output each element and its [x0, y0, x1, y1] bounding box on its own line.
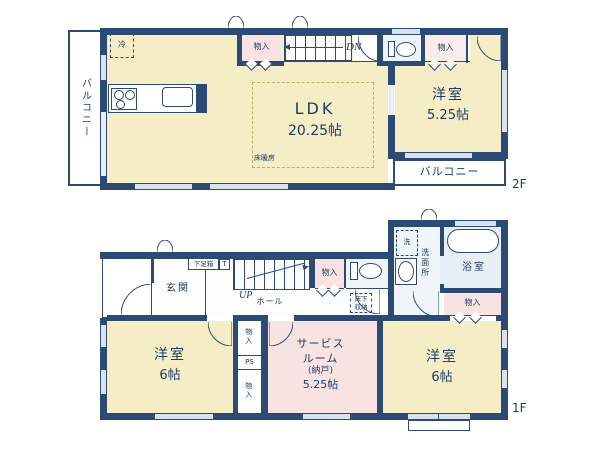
stairs-2f: [284, 35, 352, 61]
door-gap: [389, 86, 394, 114]
ldk-name-label: LDK: [280, 100, 350, 118]
counter-end: [196, 84, 207, 113]
casement-window-icon: [292, 16, 308, 28]
balcony-left: バルコニー: [68, 30, 102, 186]
window: [392, 29, 420, 34]
casement-window-icon: [228, 16, 244, 28]
room-bedroom-2f: [395, 61, 501, 152]
door-arc-icon: [477, 36, 501, 61]
window: [502, 370, 507, 388]
service-room-label1: サービス: [268, 338, 373, 350]
stairs-arrow: [289, 47, 343, 48]
toilet-tank-icon: [350, 262, 358, 280]
room-bedroom-right: [383, 321, 501, 413]
porch-step: [408, 420, 470, 431]
wall: [440, 288, 501, 293]
ldk-size-label: 20.25帖: [275, 124, 355, 139]
wall: [388, 61, 395, 85]
wall: [388, 115, 395, 159]
vanity-sink-icon: [398, 261, 414, 282]
closet-right-2f-label: 物入: [425, 44, 466, 53]
hall-label: ホール: [250, 298, 290, 307]
shoe-box-label: 下足箱: [188, 261, 219, 268]
burner-icon: [116, 100, 125, 109]
service-room-label3: (納戸): [268, 367, 373, 377]
wall: [344, 259, 346, 288]
toilet-bowl-icon: [359, 263, 382, 279]
bedroom-left-size-label: 6帖: [145, 369, 195, 383]
window: [210, 184, 288, 189]
window: [303, 414, 350, 419]
wall: [284, 61, 383, 62]
wall: [233, 321, 238, 413]
wall: [152, 259, 154, 283]
door-arc-icon: [358, 36, 380, 61]
wall: [261, 321, 268, 413]
window: [405, 153, 472, 158]
wall: [388, 259, 394, 318]
closet-hall-label: 物入: [315, 269, 344, 278]
burner-icon: [114, 90, 124, 100]
arrow-head-icon: [284, 44, 290, 50]
window: [101, 55, 106, 80]
door-leaf: [151, 284, 152, 315]
service-room-label4: 5.25帖: [268, 379, 373, 391]
window: [101, 325, 106, 347]
door-arc-icon: [121, 284, 152, 315]
floor-2f-label: 2F: [512, 178, 527, 191]
wall: [388, 220, 394, 259]
wall: [440, 227, 444, 256]
bedroom-2f-size-label: 5.25帖: [412, 109, 484, 123]
window: [408, 414, 470, 419]
wall: [496, 315, 501, 321]
washer-label: 洗: [396, 239, 418, 247]
balcony-bottom-label: バルコニー: [420, 166, 480, 178]
fridge-label: 冷: [110, 41, 134, 50]
closet-mid-top-label: 物入: [244, 328, 252, 352]
window: [502, 70, 507, 132]
floor-heating-label: 床暖房: [254, 155, 275, 163]
wall: [238, 355, 261, 356]
toilet-bowl-icon: [396, 42, 416, 57]
window: [101, 370, 106, 394]
door-arc-icon: [355, 289, 380, 314]
washroom-label: 洗面所: [420, 248, 429, 290]
closet-bath-label: 物入: [444, 299, 501, 308]
toilet-tank-icon: [388, 41, 395, 57]
window: [455, 221, 496, 226]
wall: [238, 369, 261, 370]
bedroom-right-size-label: 6帖: [415, 371, 469, 385]
casement-window-icon: [421, 209, 437, 220]
wall: [501, 220, 508, 420]
bedroom-2f-name-label: 洋室: [415, 88, 481, 103]
door-gap: [440, 256, 444, 284]
genkan-label: 玄関: [158, 283, 198, 294]
bathtub-icon: [447, 229, 499, 253]
wall: [100, 252, 394, 259]
burner-icon: [125, 90, 135, 100]
sink-icon: [162, 87, 193, 107]
wall: [466, 31, 468, 63]
service-room-label2: ルーム: [268, 353, 373, 365]
stairs-dn-label: DN: [346, 41, 361, 53]
door-arc-icon: [208, 322, 232, 346]
wall: [107, 315, 207, 321]
balcony-bottom: バルコニー: [393, 159, 506, 186]
window-mullion: [438, 414, 439, 419]
window: [155, 414, 213, 419]
balcony-door: [101, 112, 106, 176]
balcony-left-label: バルコニー: [80, 78, 91, 138]
closet-mid-bottom-label: 物入: [244, 382, 252, 406]
door-arc-icon: [413, 291, 439, 317]
floor-plan: バルコニー: [0, 0, 600, 449]
bedroom-left-name-label: 洋室: [135, 348, 205, 363]
wall: [100, 28, 508, 35]
ps-label: PS: [238, 359, 261, 367]
window: [135, 184, 192, 189]
bedroom-right-name-label: 洋室: [405, 350, 479, 365]
window: [502, 330, 507, 348]
floor-1f-label: 1F: [512, 402, 527, 415]
t-box-label: T: [219, 261, 230, 269]
bath-label: 浴室: [456, 262, 492, 273]
wall: [377, 321, 383, 413]
closet-top-2f-label: 物入: [242, 43, 281, 52]
casement-window-icon: [157, 240, 173, 252]
